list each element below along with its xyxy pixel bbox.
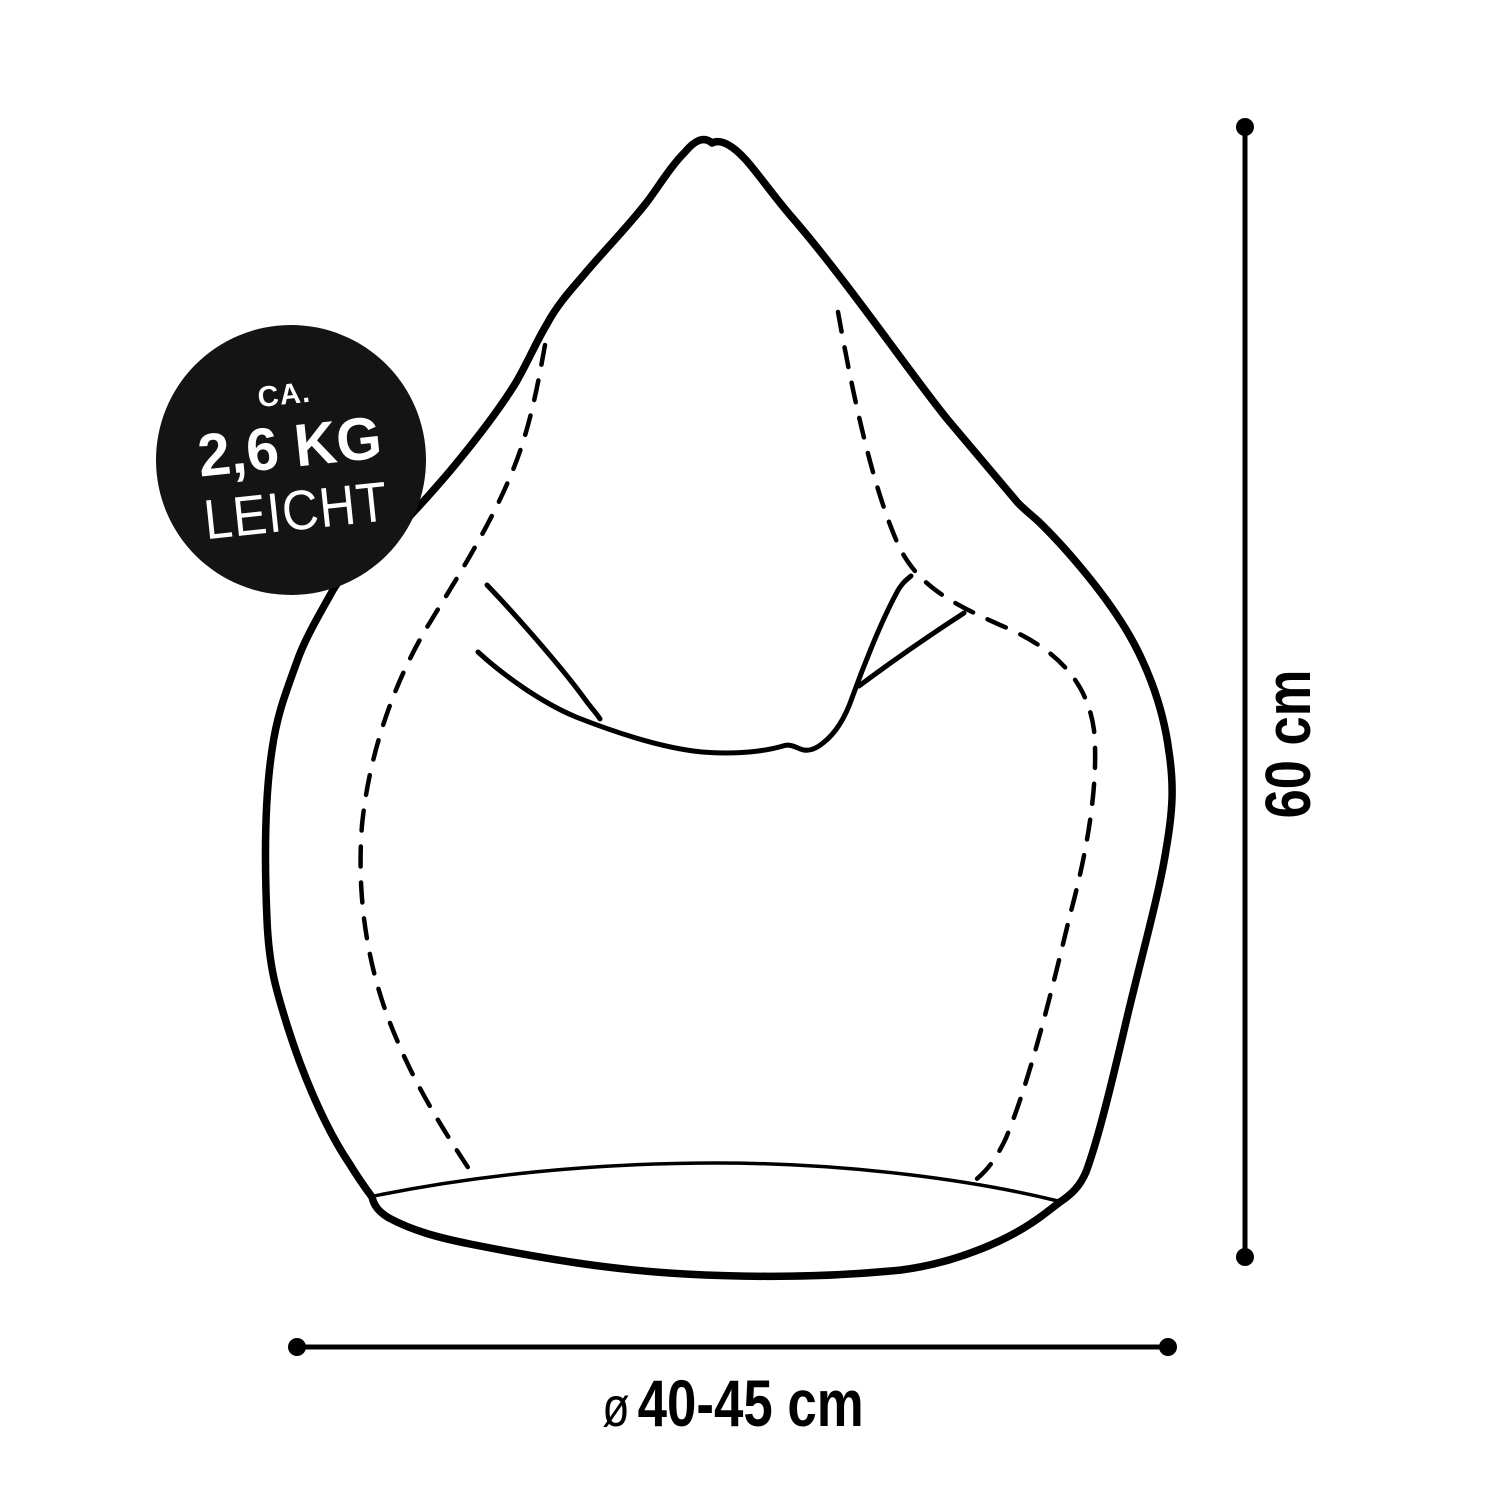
diameter-value: 40-45 cm bbox=[638, 1366, 864, 1440]
badge-descriptor-text: LEICHT bbox=[202, 473, 391, 548]
diameter-dimension-label: ø40-45 cm bbox=[602, 1365, 863, 1441]
badge-prefix-text: CA. bbox=[256, 379, 312, 413]
dimension-endpoint-dot bbox=[1236, 1248, 1254, 1266]
height-dimension-label: 60 cm bbox=[1251, 670, 1325, 819]
bean-bag-dimension-diagram: CA. 2,6 KG LEICHT 60 cm ø40-45 cm bbox=[0, 0, 1500, 1500]
dimension-endpoint-dot bbox=[1236, 118, 1254, 136]
diameter-symbol: ø bbox=[602, 1375, 629, 1438]
diameter-dimension-line bbox=[288, 1338, 1177, 1356]
base-ellipse-arc bbox=[374, 1163, 1058, 1201]
seat-crease-line bbox=[478, 576, 911, 753]
bean-bag-outline bbox=[265, 140, 1172, 1277]
dimension-endpoint-dot bbox=[1159, 1338, 1177, 1356]
right-fold-crease-line bbox=[859, 613, 964, 686]
dimension-endpoint-dot bbox=[288, 1338, 306, 1356]
